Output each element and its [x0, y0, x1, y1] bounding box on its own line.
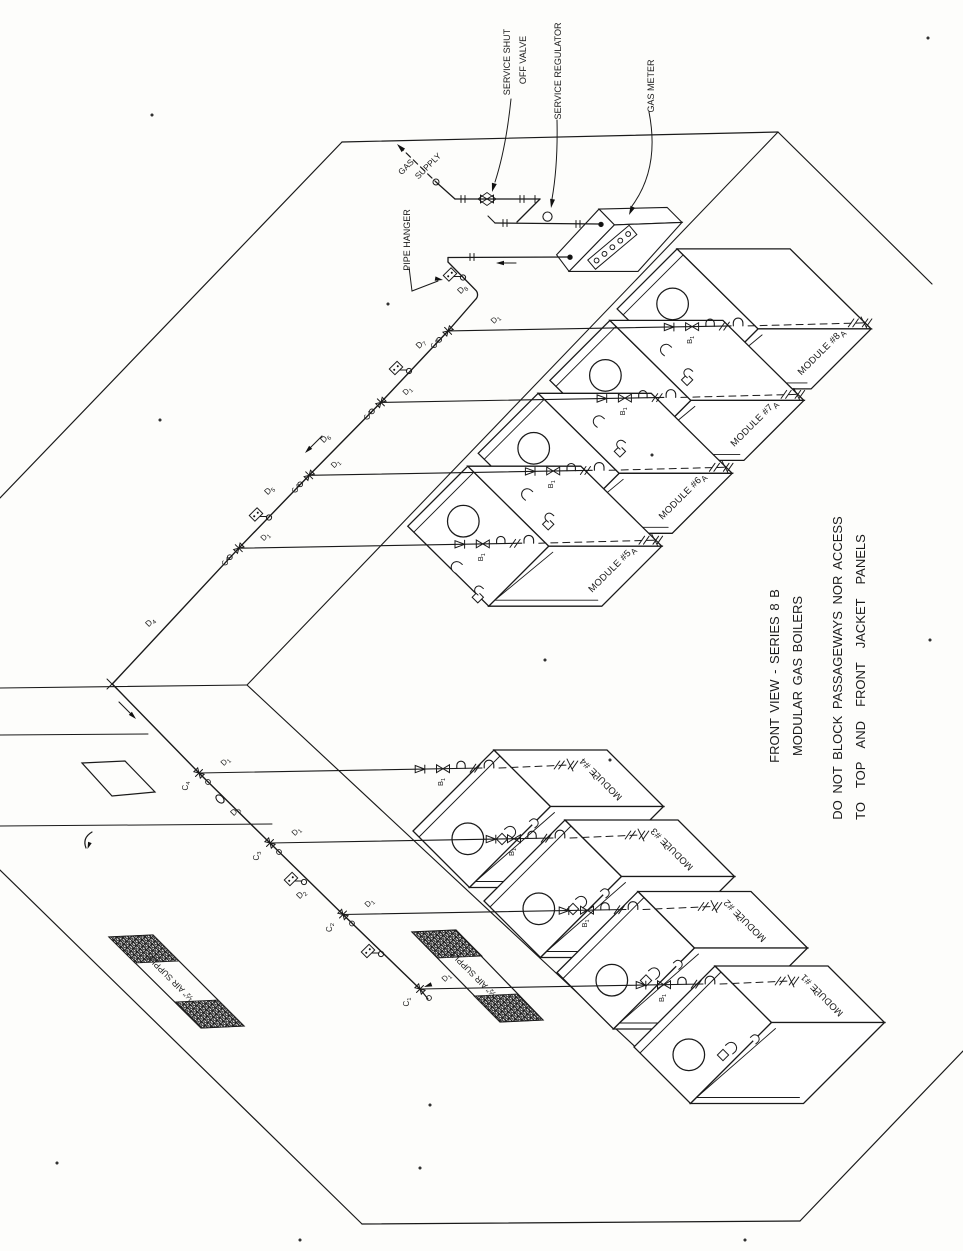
svg-text:OFF VALVE: OFF VALVE: [518, 36, 528, 84]
svg-text:GAS METER: GAS METER: [646, 59, 656, 113]
svg-text:SERVICE REGULATOR: SERVICE REGULATOR: [553, 22, 563, 120]
svg-text:MODULAR GAS BOILERS: MODULAR GAS BOILERS: [790, 596, 805, 756]
svg-text:FRONT VIEW - SERIES 8 B: FRONT VIEW - SERIES 8 B: [767, 589, 782, 763]
svg-text:DO NOT BLOCK PASSAGEWAYS NOR A: DO NOT BLOCK PASSAGEWAYS NOR ACCESS: [830, 516, 845, 820]
svg-text:PIPE HANGER: PIPE HANGER: [402, 209, 412, 271]
svg-text:TO TOP AND FRONT JACKET PANELS: TO TOP AND FRONT JACKET PANELS: [853, 534, 868, 820]
svg-text:SERVICE SHUT: SERVICE SHUT: [502, 28, 512, 95]
